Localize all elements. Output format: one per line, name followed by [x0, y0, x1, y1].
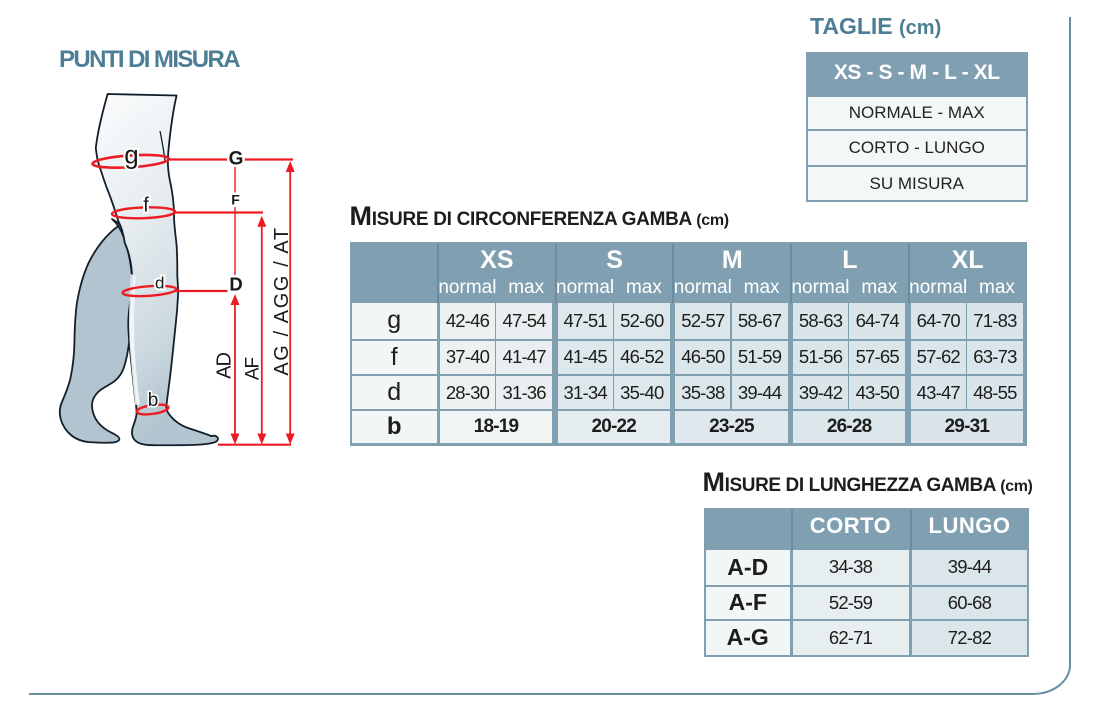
svg-text:AG / AGG / AT: AG / AGG / AT [271, 226, 293, 375]
svg-text:G: G [229, 149, 244, 170]
svg-text:b: b [148, 390, 159, 411]
svg-text:AF: AF [243, 357, 264, 380]
svg-text:AD: AD [214, 353, 236, 379]
svg-text:f: f [143, 195, 149, 217]
svg-text:D: D [229, 274, 242, 295]
svg-text:g: g [124, 140, 138, 170]
svg-text:d: d [155, 274, 164, 293]
svg-text:F: F [231, 192, 240, 208]
